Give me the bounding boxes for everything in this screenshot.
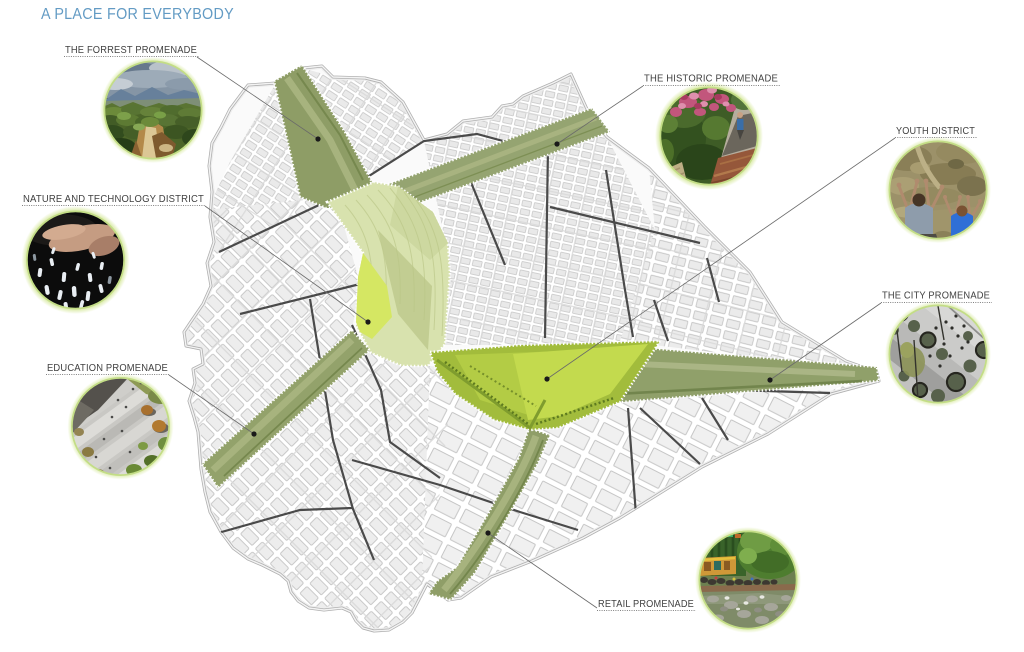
svg-text:A PLACE FOR EVERYBODY: A PLACE FOR EVERYBODY bbox=[41, 6, 234, 23]
svg-text:YOUTH DISTRICT: YOUTH DISTRICT bbox=[896, 125, 975, 137]
svg-text:THE CITY PROMENADE: THE CITY PROMENADE bbox=[882, 290, 990, 302]
svg-text:RETAIL PROMENADE: RETAIL PROMENADE bbox=[598, 598, 694, 610]
svg-text:NATURE AND TECHNOLOGY DISTRICT: NATURE AND TECHNOLOGY DISTRICT bbox=[23, 193, 204, 205]
svg-text:THE FORREST PROMENADE: THE FORREST PROMENADE bbox=[65, 44, 197, 56]
svg-text:EDUCATION PROMENADE: EDUCATION PROMENADE bbox=[47, 362, 168, 374]
